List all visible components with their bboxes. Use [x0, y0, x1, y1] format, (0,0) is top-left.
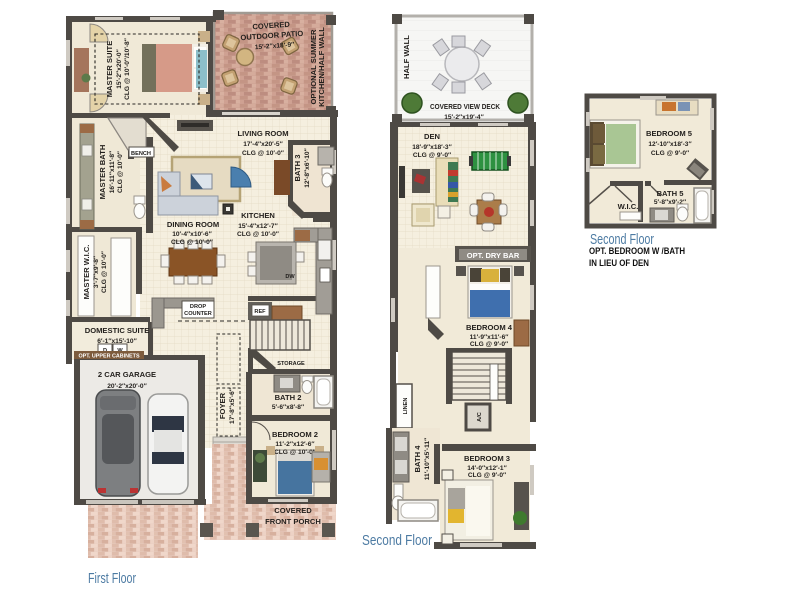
svg-text:LINEN: LINEN	[403, 398, 409, 415]
svg-text:DEN: DEN	[424, 132, 440, 141]
svg-text:KITCHEN: KITCHEN	[241, 211, 275, 220]
svg-text:A/C: A/C	[477, 412, 483, 422]
svg-text:CLG @ 9′-0″: CLG @ 9′-0″	[651, 150, 690, 157]
svg-text:CLG @ 10′-0″: CLG @ 10′-0″	[101, 250, 108, 293]
svg-text:2 CAR GARAGE: 2 CAR GARAGE	[98, 370, 156, 379]
svg-text:CLG @ 10′-0″/10′-8″: CLG @ 10′-0″/10′-8″	[124, 37, 131, 100]
svg-text:OPT. BEDROOM W /BATH: OPT. BEDROOM W /BATH	[589, 246, 685, 257]
svg-text:BATH 2: BATH 2	[275, 393, 302, 402]
svg-text:CLG @ 10′-0″: CLG @ 10′-0″	[171, 239, 214, 246]
svg-text:HALF WALL: HALF WALL	[402, 35, 411, 79]
svg-text:BATH 5: BATH 5	[657, 189, 685, 198]
svg-text:DINING ROOM: DINING ROOM	[167, 220, 219, 229]
svg-text:LIVING ROOM: LIVING ROOM	[237, 129, 288, 138]
svg-text:11′-2″x12′-6″: 11′-2″x12′-6″	[275, 441, 315, 448]
svg-text:BENCH: BENCH	[131, 151, 151, 157]
svg-text:BEDROOM 3: BEDROOM 3	[464, 454, 510, 463]
svg-text:CLG @ 10′-0″: CLG @ 10′-0″	[274, 449, 317, 456]
svg-text:First Floor: First Floor	[88, 570, 136, 587]
svg-text:20′-2″x20′-0″: 20′-2″x20′-0″	[107, 383, 147, 390]
svg-text:STORAGE: STORAGE	[277, 361, 305, 367]
svg-text:DW: DW	[285, 274, 295, 280]
svg-text:W.I.C.: W.I.C.	[618, 202, 639, 211]
svg-text:FRONT PORCH: FRONT PORCH	[265, 517, 321, 526]
svg-text:BATH 3: BATH 3	[293, 155, 302, 182]
svg-text:MASTER BATH: MASTER BATH	[98, 145, 107, 200]
svg-text:17′-4″x20′-5″: 17′-4″x20′-5″	[243, 141, 283, 148]
svg-text:16′-11″x11′-8″: 16′-11″x11′-8″	[109, 150, 116, 193]
svg-text:CLG @ 10′-0″: CLG @ 10′-0″	[242, 150, 285, 157]
svg-text:15′-4″x12′-7″: 15′-4″x12′-7″	[238, 223, 278, 230]
svg-text:MASTER SUITE: MASTER SUITE	[105, 41, 114, 98]
svg-text:BATH 4: BATH 4	[413, 445, 422, 473]
svg-text:CLG @ 9′-0″: CLG @ 9′-0″	[470, 341, 509, 348]
svg-text:DOMESTIC SUITE: DOMESTIC SUITE	[85, 326, 150, 335]
svg-text:CLG @ 9′-0″: CLG @ 9′-0″	[468, 472, 507, 479]
svg-text:15′-2″x19′-4″: 15′-2″x19′-4″	[444, 114, 484, 121]
svg-text:11′-10″x5′-11″: 11′-10″x5′-11″	[424, 437, 431, 480]
svg-text:COUNTER: COUNTER	[184, 311, 212, 317]
svg-text:18′-9″x18′-3″: 18′-9″x18′-3″	[412, 144, 452, 151]
svg-text:CLG @ 10′-0″: CLG @ 10′-0″	[117, 150, 124, 193]
svg-text:KITCHEN/HALF WALL: KITCHEN/HALF WALL	[317, 27, 326, 107]
svg-text:11′-9″x11′-6″: 11′-9″x11′-6″	[470, 334, 510, 341]
svg-text:CLG @ 10′-0″: CLG @ 10′-0″	[237, 231, 280, 238]
svg-text:14′-0″x12′-1″: 14′-0″x12′-1″	[467, 465, 507, 472]
svg-text:MASTER W.I.C.: MASTER W.I.C.	[82, 245, 91, 300]
svg-text:COVERED VIEW DECK: COVERED VIEW DECK	[430, 102, 500, 111]
svg-text:REF: REF	[254, 309, 266, 315]
svg-text:OPT. DRY BAR: OPT. DRY BAR	[467, 251, 520, 260]
svg-text:17′-8″x5′-6″: 17′-8″x5′-6″	[229, 387, 236, 424]
svg-text:10′-4″x10′-6″: 10′-4″x10′-6″	[172, 231, 212, 238]
svg-text:12′-10″x18′-3″: 12′-10″x18′-3″	[648, 141, 692, 148]
svg-text:DROP: DROP	[190, 304, 206, 310]
svg-text:12′-8″x6′-10″: 12′-8″x6′-10″	[304, 147, 311, 187]
svg-text:COVERED: COVERED	[274, 506, 312, 515]
svg-text:3′-7″x9′-8″: 3′-7″x9′-8″	[93, 255, 100, 288]
svg-text:OPT. UPPER CABINETS: OPT. UPPER CABINETS	[78, 354, 140, 360]
svg-text:BEDROOM 4: BEDROOM 4	[466, 323, 513, 332]
svg-text:IN LIEU OF DEN: IN LIEU OF DEN	[589, 258, 649, 269]
svg-text:Second Floor: Second Floor	[362, 532, 432, 549]
svg-text:15′-2″x20′-0″: 15′-2″x20′-0″	[116, 48, 123, 88]
svg-text:FOYER: FOYER	[218, 392, 227, 419]
svg-text:5′-6″x8′-8″: 5′-6″x8′-8″	[272, 404, 305, 411]
svg-text:BEDROOM 5: BEDROOM 5	[646, 129, 693, 138]
svg-text:BEDROOM 2: BEDROOM 2	[272, 430, 318, 439]
